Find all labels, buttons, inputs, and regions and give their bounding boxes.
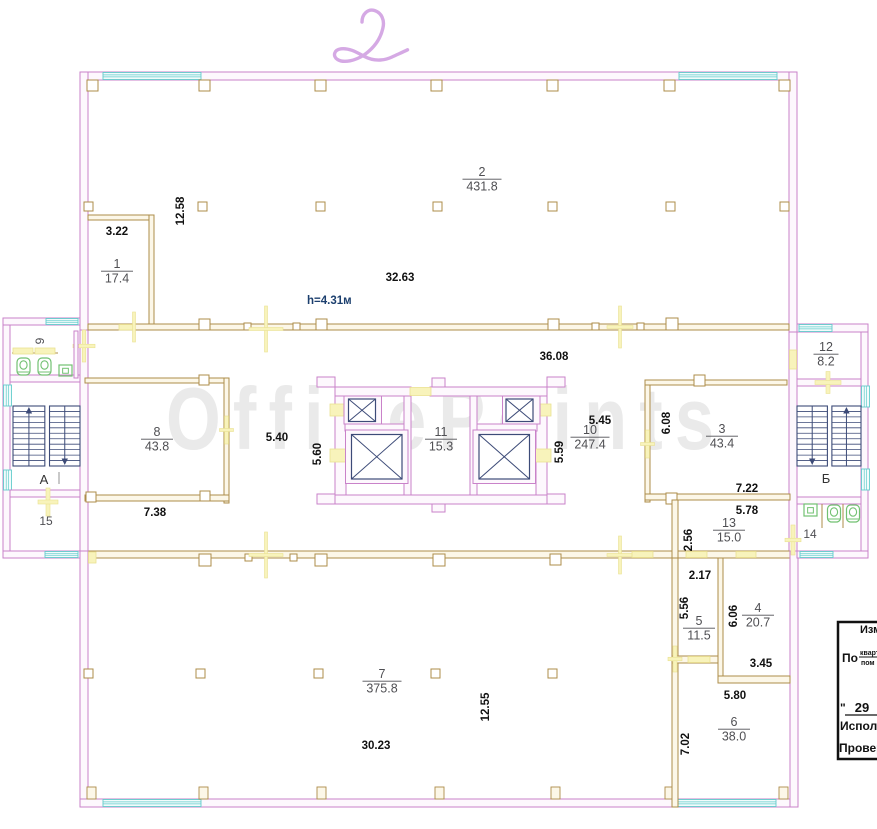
- svg-text:15.3: 15.3: [429, 440, 453, 454]
- svg-text:Исполн: Исполн: [840, 719, 877, 733]
- svg-text:43.4: 43.4: [710, 437, 734, 451]
- svg-text:5.45: 5.45: [589, 415, 612, 427]
- svg-text:2.56: 2.56: [683, 529, 695, 551]
- svg-text:12: 12: [819, 340, 833, 354]
- svg-text:Изм: Изм: [860, 624, 877, 636]
- svg-text:По: По: [842, 651, 858, 665]
- svg-text:2: 2: [479, 165, 486, 179]
- svg-text:5: 5: [696, 614, 703, 628]
- svg-text:20.7: 20.7: [746, 616, 770, 630]
- svg-text:7.02: 7.02: [680, 733, 692, 755]
- svg-text:h=4.31м: h=4.31м: [307, 295, 352, 307]
- svg-text:6.06: 6.06: [728, 605, 740, 627]
- svg-text:7: 7: [379, 667, 386, 681]
- svg-text:43.8: 43.8: [145, 440, 169, 454]
- svg-text:5.80: 5.80: [724, 690, 746, 702]
- svg-text:17.4: 17.4: [105, 272, 129, 286]
- svg-text:38.0: 38.0: [722, 730, 746, 744]
- svg-text:5.40: 5.40: [266, 432, 288, 444]
- svg-text:11.5: 11.5: [687, 629, 710, 643]
- svg-text:3.22: 3.22: [106, 226, 128, 238]
- svg-text:5.56: 5.56: [679, 597, 691, 619]
- svg-text:6: 6: [731, 715, 738, 729]
- svg-text:12.58: 12.58: [175, 196, 187, 225]
- svg-text:5.60: 5.60: [312, 443, 324, 465]
- svg-text:1: 1: [114, 257, 121, 271]
- svg-text:А: А: [40, 472, 49, 487]
- svg-text:431.8: 431.8: [466, 180, 497, 194]
- svg-text:8.2: 8.2: [817, 355, 834, 369]
- svg-text:9: 9: [33, 337, 47, 344]
- svg-text:247.4: 247.4: [574, 438, 605, 452]
- svg-text:7.22: 7.22: [736, 483, 758, 495]
- svg-text:2.17: 2.17: [689, 570, 711, 582]
- svg-text:6.08: 6.08: [661, 411, 673, 434]
- svg-text:3.45: 3.45: [750, 658, 773, 670]
- svg-text:375.8: 375.8: [366, 682, 397, 696]
- svg-text:14: 14: [803, 527, 817, 541]
- svg-text:11: 11: [435, 425, 448, 439]
- svg-text:13: 13: [722, 516, 736, 530]
- svg-text:15: 15: [39, 514, 53, 528]
- svg-text:32.63: 32.63: [386, 272, 415, 284]
- svg-text:30.23: 30.23: [362, 740, 391, 752]
- svg-text:36.08: 36.08: [540, 351, 569, 363]
- svg-text:": ": [840, 701, 846, 715]
- svg-text:5.59: 5.59: [554, 441, 566, 463]
- svg-text:8: 8: [154, 425, 161, 439]
- svg-text:7.38: 7.38: [144, 507, 167, 519]
- svg-text:Б: Б: [822, 471, 831, 486]
- svg-text:Провер: Провер: [839, 741, 877, 755]
- svg-text:15.0: 15.0: [717, 531, 741, 545]
- svg-text:12.55: 12.55: [480, 692, 492, 721]
- svg-text:29: 29: [855, 700, 869, 715]
- svg-text:кварт: кварт: [860, 650, 877, 657]
- svg-text:3: 3: [719, 422, 726, 436]
- svg-text:пом: пом: [861, 660, 875, 667]
- svg-text:5.78: 5.78: [736, 505, 759, 517]
- svg-text:4: 4: [755, 601, 762, 615]
